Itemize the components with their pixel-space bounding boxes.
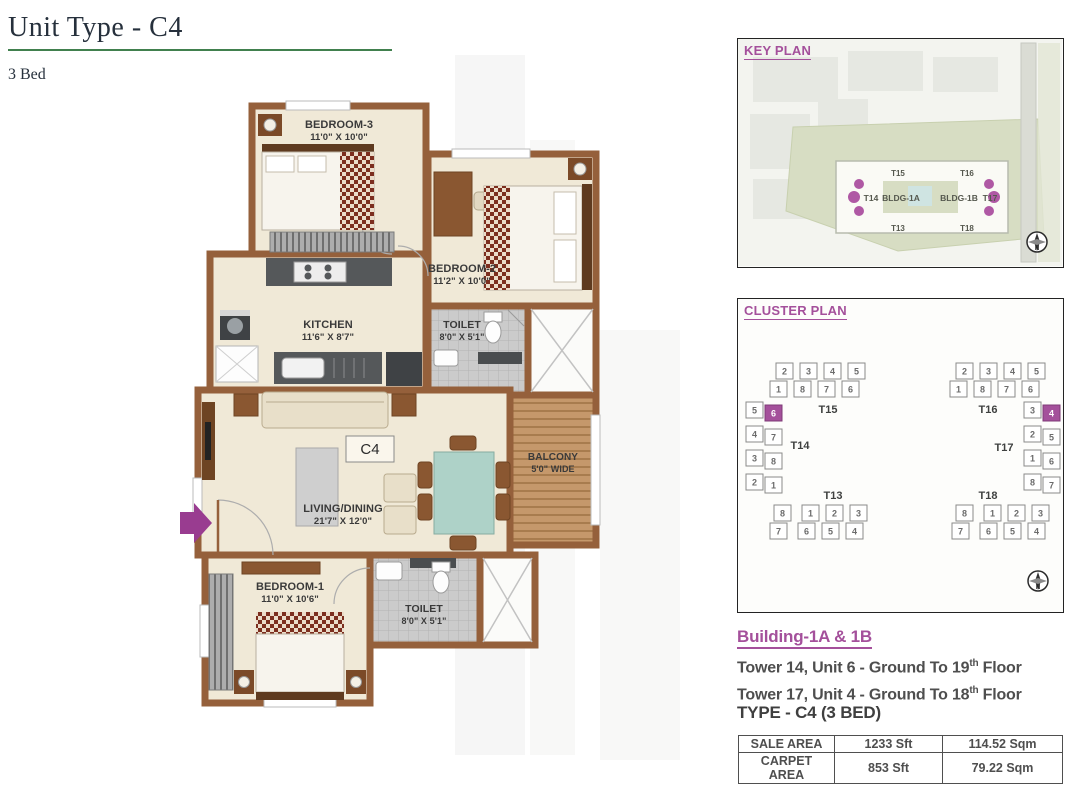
- svg-text:2: 2: [962, 367, 967, 377]
- svg-text:1: 1: [808, 509, 813, 519]
- cluster-unit: 8: [765, 453, 782, 469]
- table-row: SALE AREA 1233 Sft 114.52 Sqm: [739, 736, 1063, 753]
- bedroom2-dims: 11'2" X 10'0": [433, 276, 491, 287]
- kitchen-dims: 11'6" X 8'7": [302, 332, 354, 343]
- cluster-unit: 5: [746, 402, 763, 418]
- svg-text:3: 3: [752, 454, 757, 464]
- svg-text:7: 7: [1004, 385, 1009, 395]
- bedroom2-label: BEDROOM-2: [428, 263, 496, 275]
- cluster-unit: 3: [1024, 402, 1041, 418]
- svg-text:2: 2: [1014, 509, 1019, 519]
- cluster-unit: 3: [1032, 505, 1049, 521]
- kitchen-label: KITCHEN: [303, 319, 353, 331]
- svg-text:4: 4: [752, 430, 757, 440]
- svg-text:5: 5: [1049, 433, 1054, 443]
- svg-text:8: 8: [980, 385, 985, 395]
- cluster-unit: 4: [824, 363, 841, 379]
- svg-text:4: 4: [1010, 367, 1015, 377]
- cluster-unit: 8: [1024, 474, 1041, 490]
- cluster-unit: 7: [765, 429, 782, 445]
- svg-text:3: 3: [986, 367, 991, 377]
- cluster-unit: 6: [842, 381, 859, 397]
- cluster-unit: 2: [746, 474, 763, 490]
- svg-text:5: 5: [1010, 527, 1015, 537]
- cluster-unit: 1: [765, 477, 782, 493]
- svg-text:7: 7: [776, 527, 781, 537]
- svg-text:6: 6: [1028, 385, 1033, 395]
- tower-line-1: Tower 14, Unit 6 - Ground To 19th Floor: [737, 652, 1067, 679]
- cluster-unit: 8: [974, 381, 991, 397]
- cluster-plan-panel: CLUSTER PLAN 2 3 4 5 1 8 7 6 T15 5 6 4 7…: [737, 298, 1064, 613]
- cluster-t13-label: T13: [824, 490, 843, 502]
- cluster-unit: 1: [1024, 450, 1041, 466]
- key-plan-map: T15 T16 T14 BLDG-1A BLDG-1B T17 T13 T18 …: [738, 39, 1062, 266]
- building-info: Building-1A & 1B Tower 14, Unit 6 - Grou…: [737, 627, 1067, 707]
- cluster-unit: 3: [850, 505, 867, 521]
- cluster-unit: 8: [774, 505, 791, 521]
- cluster-unit: 4: [1028, 523, 1045, 539]
- cluster-unit: 6: [798, 523, 815, 539]
- cluster-unit: 1: [984, 505, 1001, 521]
- cluster-unit: 6: [1043, 453, 1060, 469]
- tower-line-2-suffix: Floor: [978, 687, 1021, 704]
- svg-text:1: 1: [776, 385, 781, 395]
- cluster-unit: 6: [1022, 381, 1039, 397]
- cluster-unit: 8: [956, 505, 973, 521]
- cluster-plan-title: CLUSTER PLAN: [744, 303, 847, 320]
- cluster-t17-label: T17: [995, 442, 1014, 454]
- cluster-unit: 2: [1024, 426, 1041, 442]
- cluster-unit: 3: [746, 450, 763, 466]
- cluster-unit: 4: [846, 523, 863, 539]
- table-cell: 1233 Sft: [835, 736, 943, 753]
- cluster-unit: 5: [1043, 429, 1060, 445]
- table-cell: SALE AREA: [739, 736, 835, 753]
- cluster-unit: 5: [1028, 363, 1045, 379]
- svg-text:2: 2: [1030, 430, 1035, 440]
- balcony-label: BALCONY: [528, 452, 578, 463]
- cluster-unit: 2: [956, 363, 973, 379]
- cluster-unit: 6: [980, 523, 997, 539]
- svg-text:6: 6: [804, 527, 809, 537]
- cluster-t15-label: T15: [819, 404, 838, 416]
- svg-text:6: 6: [986, 527, 991, 537]
- svg-text:5: 5: [1034, 367, 1039, 377]
- cluster-unit: 3: [980, 363, 997, 379]
- svg-text:8: 8: [780, 509, 785, 519]
- svg-text:7: 7: [958, 527, 963, 537]
- cluster-unit: 7: [998, 381, 1015, 397]
- compass-icon: N: [1027, 232, 1047, 252]
- cluster-unit: 2: [1008, 505, 1025, 521]
- svg-text:2: 2: [782, 367, 787, 377]
- bedroom3-label: BEDROOM-3: [305, 119, 373, 131]
- key-bldg1a: BLDG-1A: [882, 193, 920, 203]
- cluster-unit: 7: [1043, 477, 1060, 493]
- toilet1-label: TOILET: [405, 603, 443, 615]
- cluster-unit: 1: [950, 381, 967, 397]
- svg-text:6: 6: [1049, 457, 1054, 467]
- svg-text:8: 8: [771, 457, 776, 467]
- svg-text:8: 8: [800, 385, 805, 395]
- living-label: LIVING/DINING: [303, 503, 383, 515]
- svg-text:N: N: [1035, 246, 1039, 252]
- table-cell: 114.52 Sqm: [943, 736, 1063, 753]
- cluster-unit: 4: [1004, 363, 1021, 379]
- table-row: CARPET AREA 853 Sft 79.22 Sqm: [739, 753, 1063, 784]
- svg-text:4: 4: [852, 527, 857, 537]
- svg-text:7: 7: [824, 385, 829, 395]
- svg-text:4: 4: [1049, 409, 1054, 419]
- building-heading: Building-1A & 1B: [737, 627, 872, 649]
- svg-text:6: 6: [771, 409, 776, 419]
- key-t17: T17: [983, 193, 998, 203]
- svg-text:1: 1: [956, 385, 961, 395]
- svg-text:1: 1: [1030, 454, 1035, 464]
- svg-text:2: 2: [832, 509, 837, 519]
- cluster-unit: 1: [770, 381, 787, 397]
- tower-line-2-text: Tower 17, Unit 4 - Ground To 18: [737, 687, 969, 704]
- cluster-unit-highlight: 4: [1043, 405, 1060, 421]
- svg-text:5: 5: [854, 367, 859, 377]
- svg-text:3: 3: [806, 367, 811, 377]
- cluster-unit: 4: [746, 426, 763, 442]
- toilet2-dims: 8'0" X 5'1": [440, 332, 485, 342]
- cluster-unit: 7: [770, 523, 787, 539]
- unit-marker: C4: [346, 436, 394, 462]
- table-cell: CARPET AREA: [739, 753, 835, 784]
- svg-text:1: 1: [771, 481, 776, 491]
- svg-text:6: 6: [848, 385, 853, 395]
- svg-text:4: 4: [1034, 527, 1039, 537]
- svg-text:N: N: [1036, 585, 1040, 591]
- cluster-unit: 2: [826, 505, 843, 521]
- cluster-unit: 3: [800, 363, 817, 379]
- type-heading: TYPE - C4 (3 BED): [737, 703, 881, 723]
- living-dims: 21'7" X 12'0": [314, 516, 372, 527]
- cluster-unit: 8: [794, 381, 811, 397]
- cluster-unit: 2: [776, 363, 793, 379]
- key-t15: T15: [891, 169, 905, 178]
- svg-text:4: 4: [830, 367, 835, 377]
- cluster-plan-map: 2 3 4 5 1 8 7 6 T15 5 6 4 7 3 8 2 1 T14 …: [738, 299, 1062, 611]
- tower-line-1-suffix: Floor: [978, 659, 1021, 676]
- key-bldg1b: BLDG-1B: [940, 193, 978, 203]
- cluster-t14-label: T14: [791, 440, 811, 452]
- svg-text:8: 8: [962, 509, 967, 519]
- svg-text:8: 8: [1030, 478, 1035, 488]
- svg-text:5: 5: [828, 527, 833, 537]
- page-subtitle: 3 Bed: [8, 66, 46, 84]
- svg-text:5: 5: [752, 406, 757, 416]
- key-t13: T13: [891, 224, 905, 233]
- toilet2-label: TOILET: [443, 319, 481, 331]
- bedroom1-label: BEDROOM-1: [256, 581, 324, 593]
- balcony-dims: 5'0" WIDE: [531, 464, 574, 474]
- cluster-unit: 7: [952, 523, 969, 539]
- cluster-unit: 5: [822, 523, 839, 539]
- page-title: Unit Type - C4: [8, 12, 183, 44]
- table-cell: 853 Sft: [835, 753, 943, 784]
- cluster-unit: 5: [1004, 523, 1021, 539]
- key-t16: T16: [960, 169, 974, 178]
- svg-text:3: 3: [1030, 406, 1035, 416]
- table-cell: 79.22 Sqm: [943, 753, 1063, 784]
- svg-text:2: 2: [752, 478, 757, 488]
- svg-text:3: 3: [1038, 509, 1043, 519]
- area-table: SALE AREA 1233 Sft 114.52 Sqm CARPET ARE…: [738, 735, 1063, 784]
- floor-plan: C4 BEDROOM-3 11'0" X 10'0" BEDROOM-2 11'…: [178, 100, 602, 712]
- cluster-unit: 1: [802, 505, 819, 521]
- svg-text:C4: C4: [360, 441, 379, 458]
- cluster-unit: 7: [818, 381, 835, 397]
- svg-text:1: 1: [990, 509, 995, 519]
- compass-icon: N: [1028, 571, 1048, 591]
- svg-text:3: 3: [856, 509, 861, 519]
- svg-text:7: 7: [1049, 481, 1054, 491]
- cluster-unit-highlight: 6: [765, 405, 782, 421]
- cluster-t18-label: T18: [979, 490, 998, 502]
- bedroom3-dims: 11'0" X 10'0": [310, 132, 368, 143]
- toilet1-dims: 8'0" X 5'1": [402, 616, 447, 626]
- svg-text:7: 7: [771, 433, 776, 443]
- key-t18: T18: [960, 224, 974, 233]
- key-plan-panel: KEY PLAN T15 T16 T14 BLDG-1A BLDG-1B T17…: [737, 38, 1064, 268]
- title-underline: [8, 49, 392, 51]
- bedroom1-dims: 11'0" X 10'6": [261, 594, 319, 605]
- cluster-unit: 5: [848, 363, 865, 379]
- tower-line-1-text: Tower 14, Unit 6 - Ground To 19: [737, 659, 969, 676]
- cluster-t16-label: T16: [979, 404, 998, 416]
- key-t14: T14: [864, 193, 879, 203]
- key-plan-title: KEY PLAN: [744, 43, 811, 60]
